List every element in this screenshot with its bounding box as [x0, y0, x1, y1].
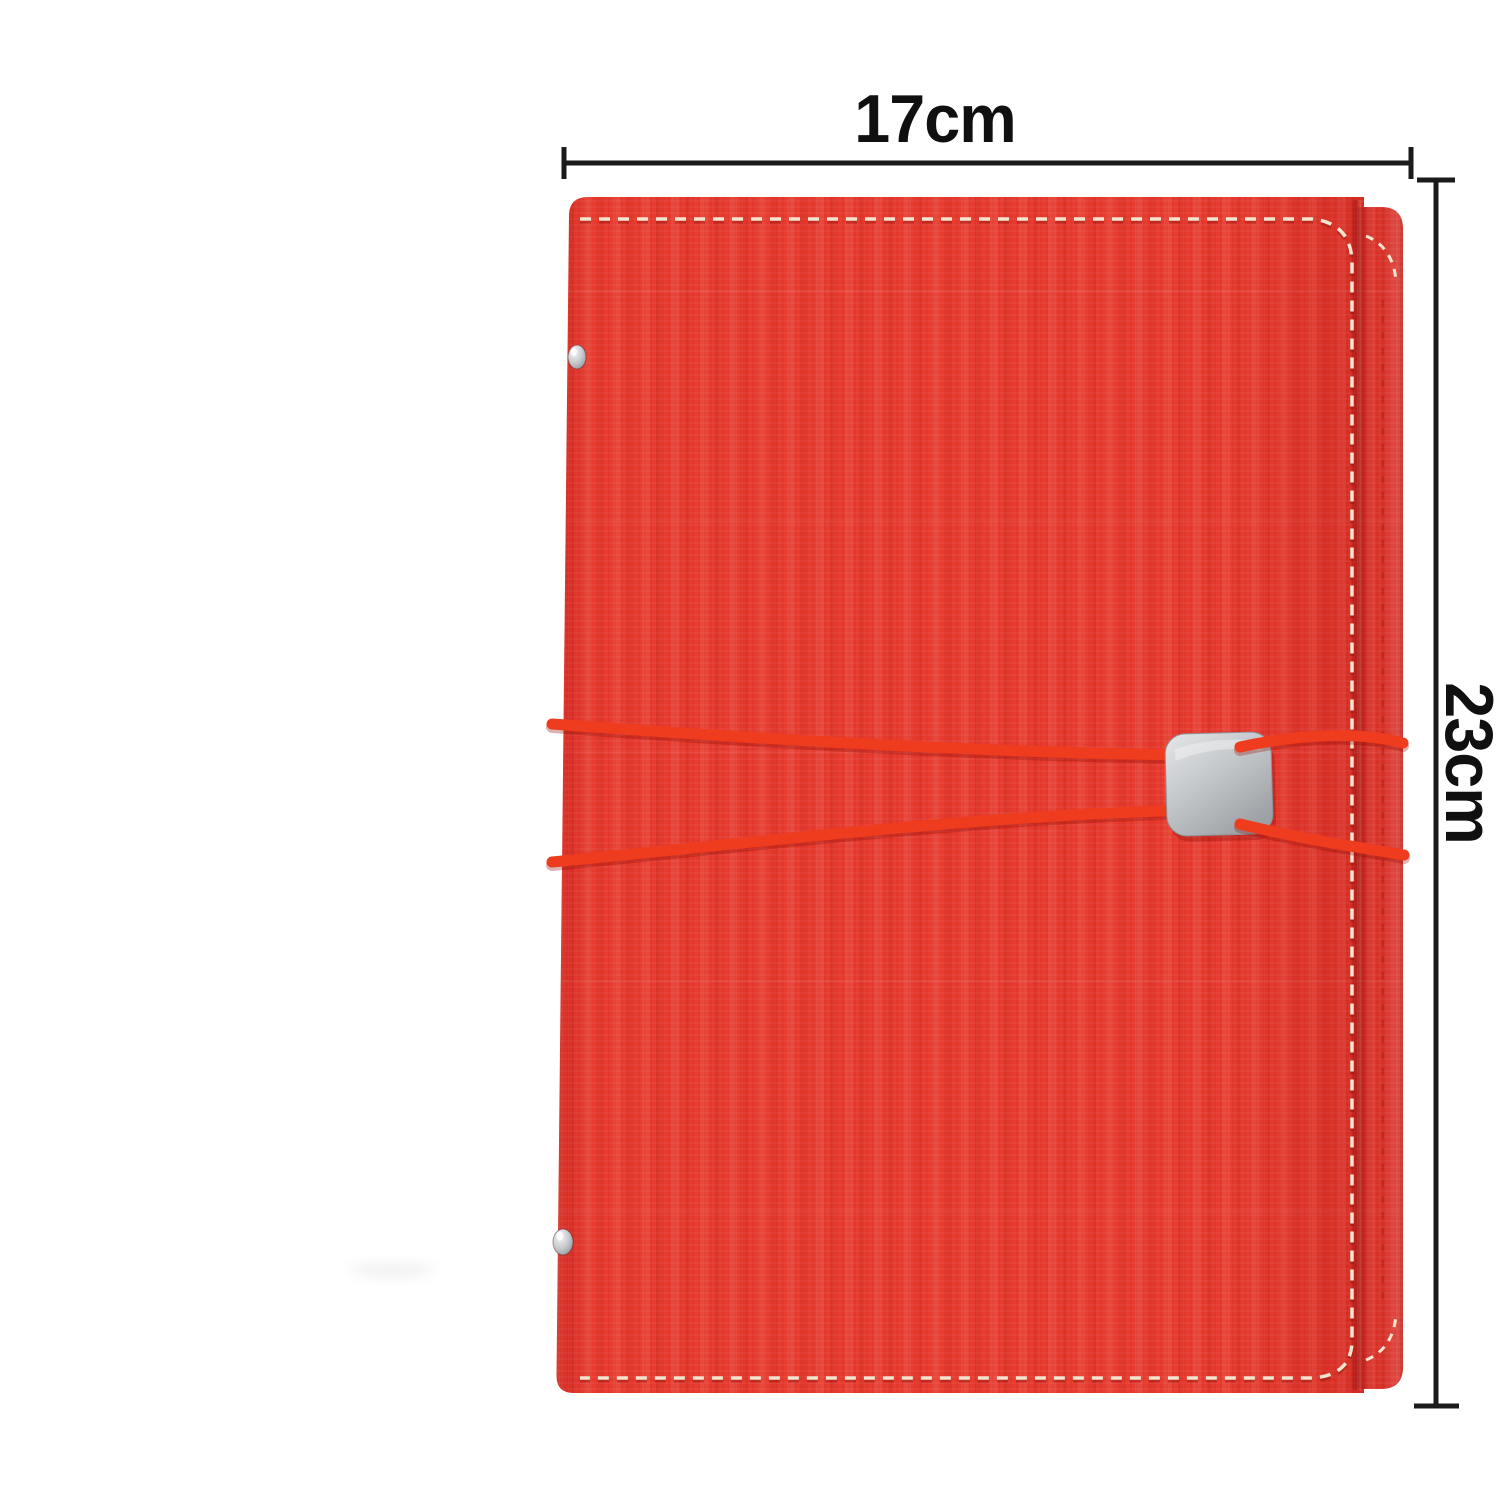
- leather-texture: [550, 195, 1410, 1395]
- notebook-product-illustration: 17cm 23cm: [0, 0, 1500, 1500]
- height-label: 23cm: [1431, 682, 1500, 843]
- product-photo-canvas: 17cm 23cm: [0, 0, 1500, 1500]
- background-smudge: [350, 1262, 434, 1278]
- notebook: [550, 195, 1410, 1395]
- snap-rivet-top: [568, 345, 586, 369]
- width-label: 17cm: [854, 82, 1015, 158]
- snap-rivet-bottom: [553, 1229, 573, 1255]
